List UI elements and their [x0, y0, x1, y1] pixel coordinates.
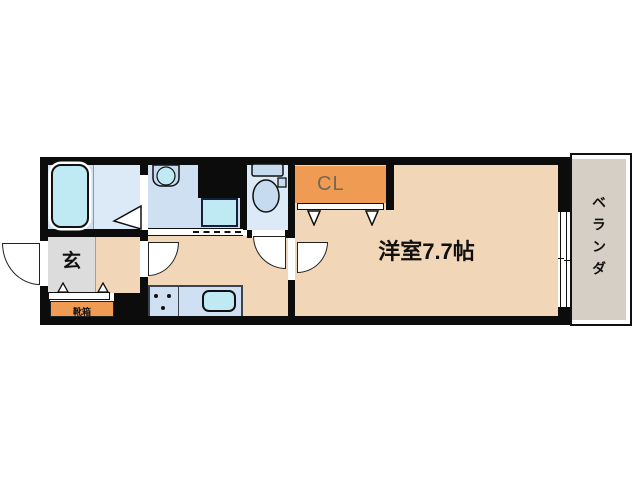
shoe-box: 靴箱 [50, 301, 114, 317]
wall-bottom [40, 316, 570, 325]
closet-door-triangle-icon [365, 210, 379, 226]
sliding-door-dashed-line [193, 231, 241, 233]
shoe-box-label: 靴箱 [73, 307, 91, 317]
main-room-label: 洋室7.7帖 [295, 241, 558, 263]
entrance-step [48, 292, 110, 300]
step-triangle-icon [97, 282, 109, 293]
entrance-label: 玄 [48, 252, 95, 271]
kitchen-counter [148, 285, 243, 316]
bathroom-folding-door-icon [111, 204, 143, 232]
toilet-icon [249, 163, 289, 215]
veranda: ベランダ [570, 153, 632, 326]
counter-divider [178, 287, 179, 316]
veranda-label: ベランダ [592, 195, 606, 283]
balcony-window-icon [558, 212, 570, 307]
washing-machine-pan [201, 198, 238, 227]
closet-label: CL [317, 174, 345, 194]
washbasin-sliding-door-track [148, 228, 243, 236]
mainroom-door-opening [288, 238, 295, 280]
front-door-opening [40, 241, 48, 286]
wall-top [40, 157, 570, 165]
bathtub-icon [51, 164, 89, 228]
wall-toilet-divider [240, 157, 247, 230]
step-triangle-icon [57, 282, 69, 293]
corridor-door-opening [140, 241, 148, 277]
floorplan: CL 洋室7.7帖 玄 靴箱 [0, 0, 640, 480]
closet: CL [295, 166, 386, 203]
wall-below-corridor [114, 293, 148, 316]
stove-burners-icon [154, 294, 176, 312]
wall-closet-right [386, 157, 394, 210]
washbasin-icon [151, 164, 181, 193]
closet-door-triangle-icon [307, 210, 321, 226]
front-door-arc [2, 243, 40, 285]
kitchen-sink-icon [202, 290, 236, 312]
closet-door-track [297, 203, 384, 210]
